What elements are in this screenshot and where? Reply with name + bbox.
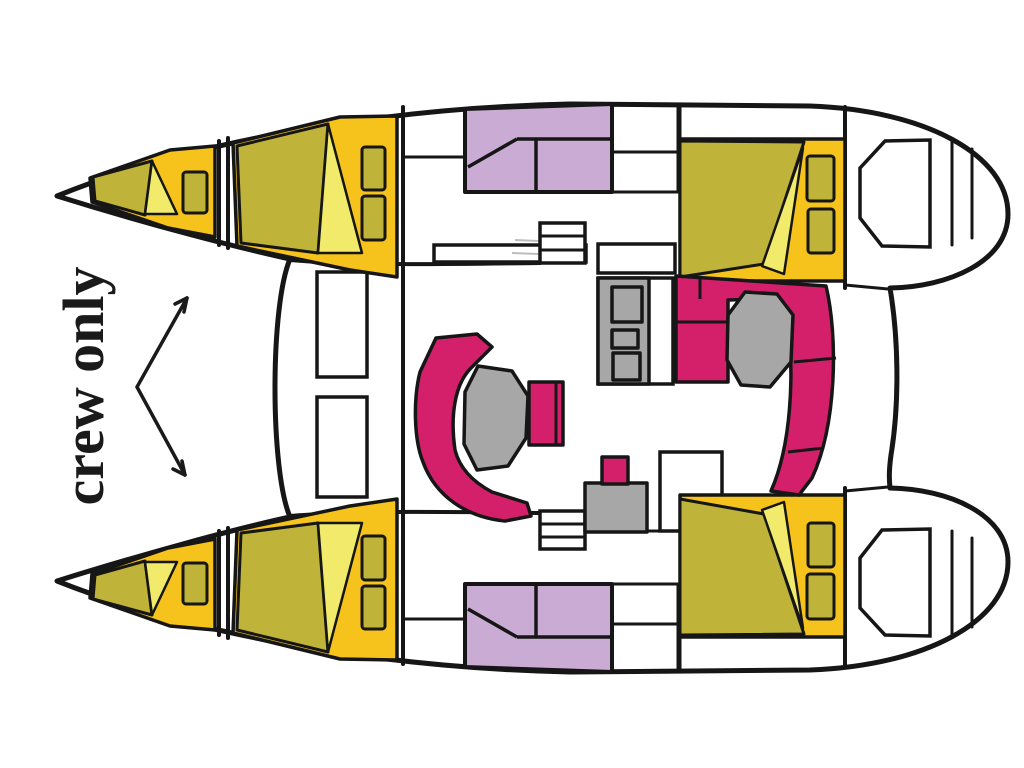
- floor-plan-canvas: crew only: [0, 0, 1024, 768]
- aft-pillow-bottom-2: [808, 523, 834, 567]
- head-room-top: [465, 104, 612, 192]
- head-compartment-bottom: [465, 584, 612, 672]
- stern-deck-bottom: [860, 529, 930, 636]
- crew-cabin-top: [90, 146, 215, 237]
- galley-stove-small: [612, 330, 638, 348]
- forward-pillow-bottom-2: [362, 536, 385, 580]
- crew-pillow-top: [183, 172, 207, 213]
- boat-floor-plan: crew only: [0, 0, 1024, 768]
- companionway-steps-top: [540, 223, 585, 263]
- crew-only-label: crew only: [51, 267, 116, 506]
- aft-cabin-bottom: [680, 495, 845, 637]
- forward-mattress-top: [237, 124, 328, 253]
- forward-pillow-bottom-1: [362, 586, 385, 629]
- counter-top: [598, 244, 675, 273]
- forward-pillow-top-2: [362, 196, 385, 240]
- aft-pillow-top-1: [807, 156, 834, 201]
- crew-cabin-bottom: [90, 539, 215, 630]
- forward-pillow-top-1: [362, 147, 385, 190]
- nav-stool: [602, 457, 628, 484]
- aft-pillow-bottom-1: [807, 574, 834, 619]
- nav-desk: [585, 483, 647, 532]
- foredeck-hatch-top: [317, 272, 367, 377]
- galley-stove-large: [613, 353, 640, 380]
- stern-deck-top: [860, 140, 930, 247]
- companionway-steps-bottom: [540, 511, 585, 549]
- foredeck-hatch-bottom: [317, 397, 367, 497]
- crew-only-arrows: [137, 298, 187, 475]
- crew-only-annotation: crew only: [51, 267, 187, 506]
- aft-pillow-top-2: [808, 209, 834, 253]
- cockpit-table: [727, 292, 793, 387]
- head-compartment-top: [465, 104, 612, 192]
- crew-pillow-bottom: [183, 563, 207, 604]
- aft-cabin-top: [680, 139, 845, 281]
- forward-mattress-bottom: [237, 523, 328, 652]
- head-room-bottom: [465, 584, 612, 672]
- galley-sink: [612, 287, 642, 322]
- salon-seat: [529, 382, 563, 445]
